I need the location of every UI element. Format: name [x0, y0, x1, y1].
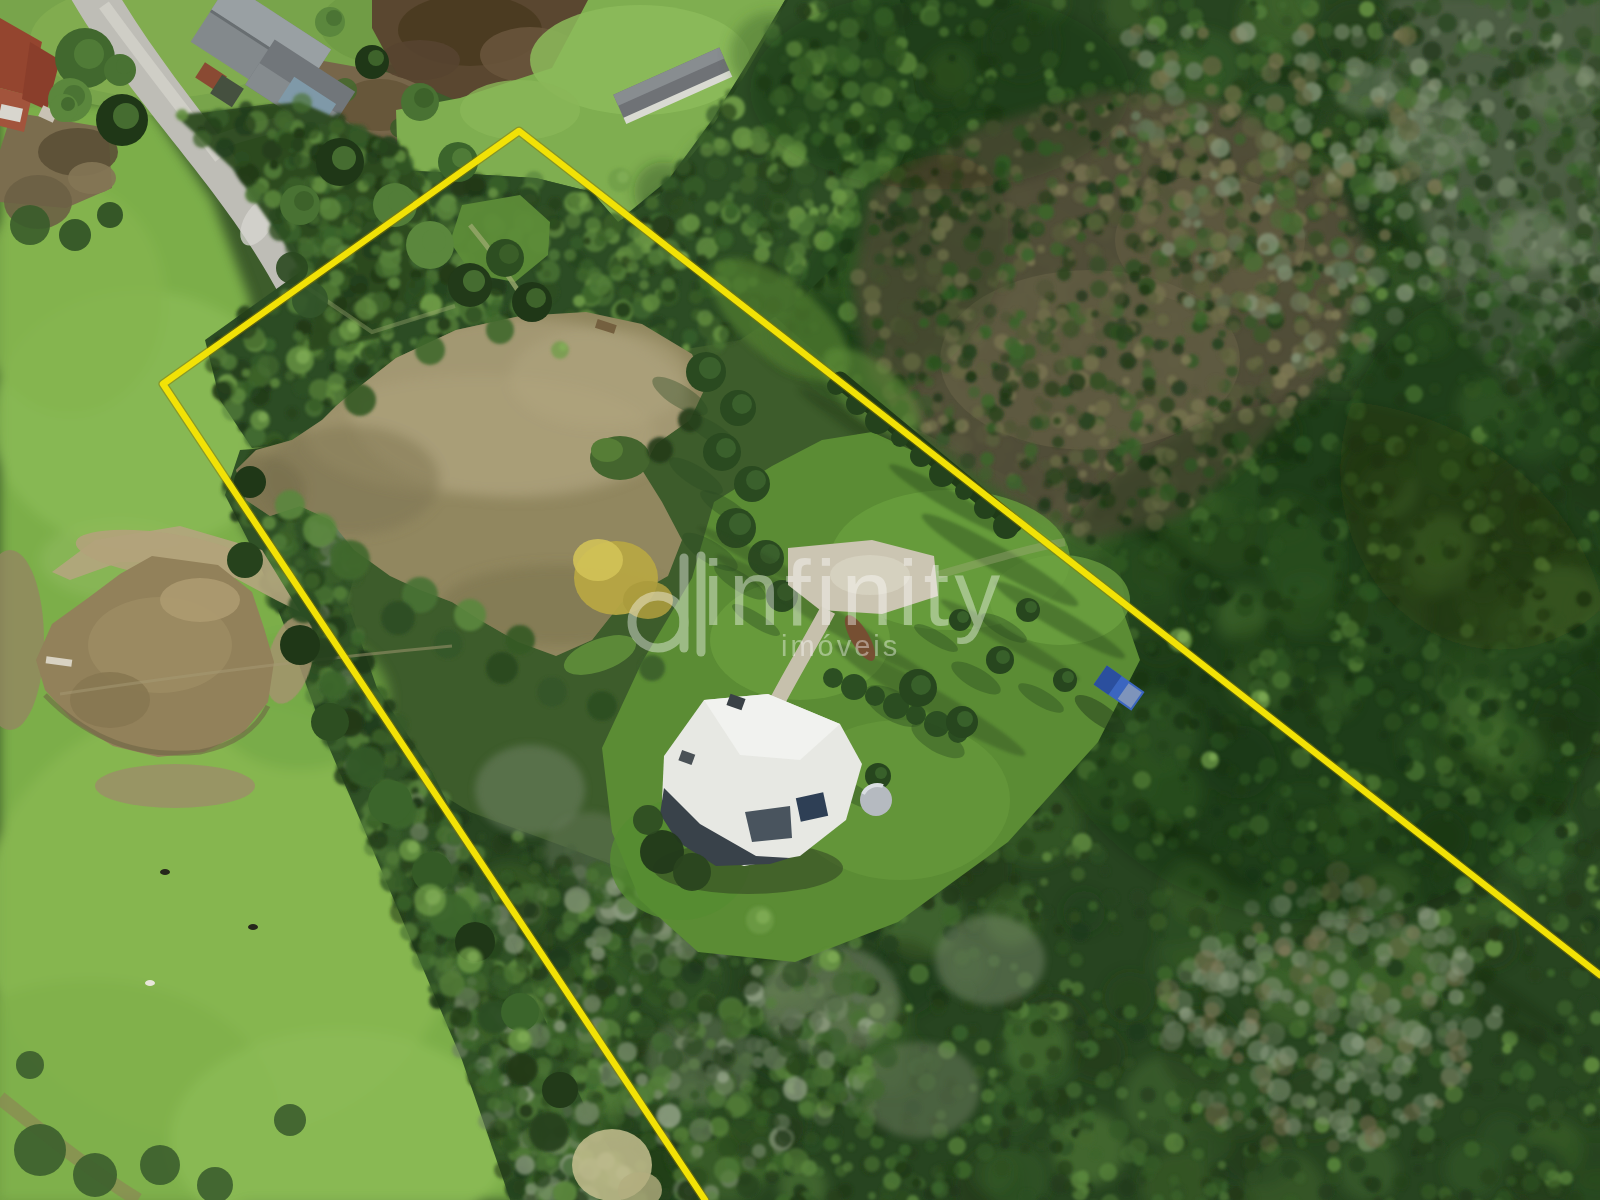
svg-text:imóveis: imóveis — [781, 630, 900, 662]
svg-text:infinity: infinity — [703, 542, 1005, 644]
